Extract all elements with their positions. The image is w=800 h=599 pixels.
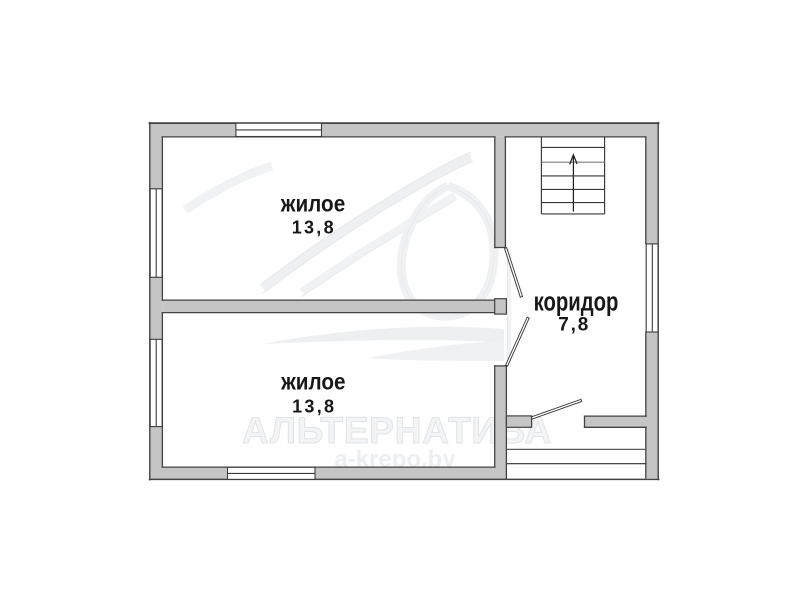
svg-text:13,8: 13,8 bbox=[292, 218, 336, 238]
svg-text:коридор: коридор bbox=[534, 287, 619, 316]
svg-text:13,8: 13,8 bbox=[292, 396, 336, 416]
svg-text:жилое: жилое bbox=[280, 369, 345, 395]
svg-text:7,8: 7,8 bbox=[558, 315, 590, 336]
svg-text:жилое: жилое bbox=[280, 190, 345, 216]
